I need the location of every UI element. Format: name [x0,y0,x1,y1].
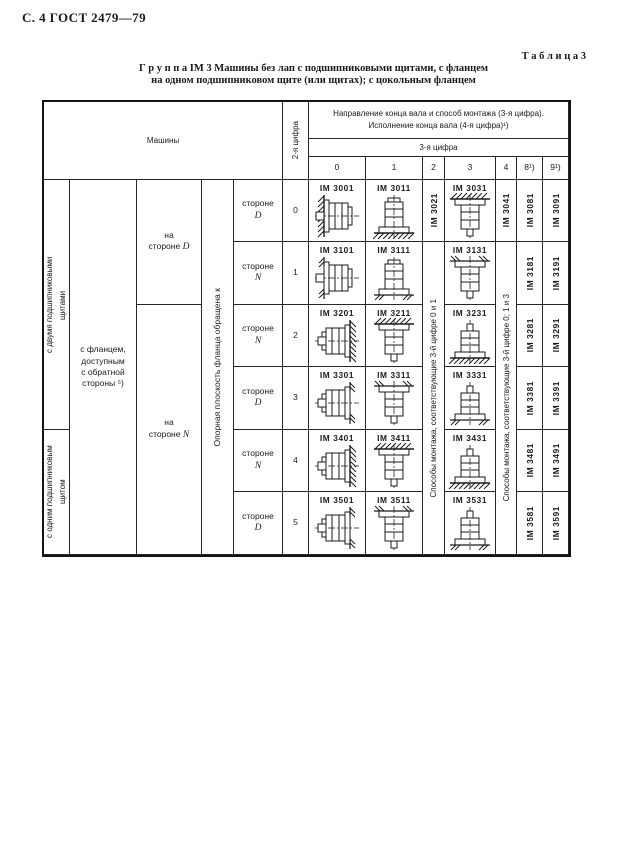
cell-second-digit-row1: 1 [283,242,309,305]
im-code-label: IM 3301 [320,370,354,380]
side-letter-n: N [183,430,189,440]
digit-col-header-9: 9¹) [543,157,569,180]
flange-note-line4: стороны ⁵) [80,378,126,389]
cell-machine-im-3101: IM 3101 [309,242,366,305]
side-letter: N [242,460,274,473]
cell-im-code-vertical-im-3041: IM 3041 [496,180,517,242]
cell-machine-im-3001: IM 3001 [309,180,366,242]
im-code-label: IM 3231 [453,308,487,318]
flange-note-cell: с фланцем, доступным с обратной стороны … [70,180,137,555]
side-letter: N [242,335,274,348]
cell-machine-im-3431: IM 3431 [445,430,496,492]
machine-mount-drawing [371,318,417,364]
support-plane-cell: Опорная плоскость фланца обращена к [202,180,234,555]
one-bearing-shield-cell: с одним подшипниковым щитом [44,430,70,555]
machine-mount-drawing [314,380,360,426]
im-code-label: IM 3211 [377,308,411,318]
cell-im-code-vertical-im-3091: IM 3091 [543,180,569,242]
digit-col-header-8: 8¹) [517,157,543,180]
im-code-label: IM 3481 [525,443,535,477]
machine-mount-drawing [314,318,360,364]
im-code-label: IM 3491 [551,443,561,477]
cell-im-code-vertical-im-3391: IM 3391 [543,367,569,430]
side-letter: N [242,272,274,285]
im-code-label: IM 3591 [551,506,561,540]
cell-im-code-vertical-im-3191: IM 3191 [543,242,569,305]
page-header: С. 4 ГОСТ 2479—79 [22,10,146,26]
digit-col-header-4: 4 [496,157,517,180]
im-code-label: IM 3041 [501,193,511,227]
cell-machine-im-3011: IM 3011 [366,180,423,242]
im-code-label: IM 3021 [429,193,439,227]
im-code-label: IM 3081 [525,193,535,227]
machine-mount-drawing [371,443,417,489]
table-title-line1: Г р у п п а IM 3 Машины без лап с подшип… [0,63,627,75]
machine-mount-drawing [314,255,360,301]
cell-machine-im-3211: IM 3211 [366,305,423,367]
im-code-label: IM 3401 [320,433,354,443]
cell-im-code-vertical-im-3281: IM 3281 [517,305,543,367]
machine-mount-drawing [447,505,493,551]
cell-machine-im-3031: IM 3031 [445,180,496,242]
gost-document-page: С. 4 ГОСТ 2479—79 Т а б л и ц а 3 Г р у … [0,0,627,846]
machine-mount-drawing [314,443,360,489]
cell-im-code-vertical-im-3381: IM 3381 [517,367,543,430]
machine-mount-drawing [371,193,417,239]
im-code-label: IM 3581 [525,506,535,540]
cell-machine-im-3401: IM 3401 [309,430,366,492]
im-code-label: IM 3311 [377,370,411,380]
cell-im-code-vertical-im-3081: IM 3081 [517,180,543,242]
second-digit-header-cell: 2-я цифра [283,102,309,180]
machine-mount-drawing [447,380,493,426]
im-code-label: IM 3501 [320,495,354,505]
cell-machine-im-3111: IM 3111 [366,242,423,305]
cell-machine-im-3231: IM 3231 [445,305,496,367]
machine-mount-drawing [314,193,360,239]
cell-machine-im-3501: IM 3501 [309,492,366,555]
mounting-note-col2-cell: Способы монтажа, соответствующие 3-й циф… [423,242,445,555]
flange-note-line2: доступным [80,356,126,367]
cell-facing-side-row2: сторонеN [234,305,283,367]
cell-machine-im-3511: IM 3511 [366,492,423,555]
im-code-label: IM 3431 [453,433,487,443]
side-letter: D [242,522,274,535]
on-side-prefix-n: на [149,417,189,428]
im-code-label: IM 3181 [525,256,535,290]
cell-second-digit-row3: 3 [283,367,309,430]
im-code-label: IM 3201 [320,308,354,318]
cell-im-code-vertical-im-3291: IM 3291 [543,305,569,367]
cell-im-code-vertical-im-3481: IM 3481 [517,430,543,492]
digit-col-header-1: 1 [366,157,423,180]
im-code-label: IM 3011 [377,183,411,193]
machine-mount-drawing [371,505,417,551]
mounting-note-col4-cell: Способы монтажа, соответствующие 3-й циф… [496,242,517,555]
im-code-label: IM 3511 [377,495,411,505]
cell-machine-im-3411: IM 3411 [366,430,423,492]
cell-facing-side-row0: сторонеD [234,180,283,242]
im-code-label: IM 3111 [377,245,410,255]
im-code-label: IM 3101 [320,245,354,255]
flange-note-line1: с фланцем, [80,344,126,355]
cell-second-digit-row2: 2 [283,305,309,367]
flange-on-side-d-cell: на стороне D [137,180,202,305]
im-code-label: IM 3001 [320,183,354,193]
direction-header-line2: Исполнение конца вала (4-я цифра)¹) [369,120,509,132]
third-digit-header-cell: 3-я цифра [309,139,569,157]
cell-machine-im-3311: IM 3311 [366,367,423,430]
machines-header-cell: Машины [44,102,283,180]
two-bearing-shields-label: с двумя подшипниковыми щитами [44,249,69,361]
cell-facing-side-row1: сторонеN [234,242,283,305]
table-title-line2: на одном подшипниковом щите (или щитах);… [0,75,627,87]
flange-note-line3: с обратной [80,367,126,378]
cell-machine-im-3201: IM 3201 [309,305,366,367]
im-code-label: IM 3191 [551,256,561,290]
cell-second-digit-row5: 5 [283,492,309,555]
one-bearing-shield-label: с одним подшипниковым щитом [44,440,69,544]
digit-col-header-3: 3 [445,157,496,180]
mounting-note-col4-label: Способы монтажа, соответствующие 3-й циф… [502,294,511,501]
third-digit-header-label: 3-я цифра [419,142,457,154]
cell-second-digit-row4: 4 [283,430,309,492]
cell-im-code-vertical-im-3581: IM 3581 [517,492,543,555]
im-code-label: IM 3091 [551,193,561,227]
flange-on-side-n-cell: на стороне N [137,305,202,555]
im-code-label: IM 3131 [453,245,487,255]
cell-im-code-vertical-im-3491: IM 3491 [543,430,569,492]
im3-mounting-table: Машины 2-я цифра Направление конца вала … [42,100,571,557]
cell-im-code-vertical-im-3021: IM 3021 [423,180,445,242]
digit-col-header-2: 2 [423,157,445,180]
support-plane-label: Опорная плоскость фланца обращена к [212,288,223,447]
im-code-label: IM 3031 [453,183,487,193]
on-side-prefix: на [149,230,190,241]
machine-mount-drawing [371,380,417,426]
cell-machine-im-3301: IM 3301 [309,367,366,430]
im-code-label: IM 3281 [525,318,535,352]
machine-mount-drawing [447,255,493,301]
cell-im-code-vertical-im-3591: IM 3591 [543,492,569,555]
im-code-label: IM 3291 [551,318,561,352]
machine-mount-drawing [314,505,360,551]
two-bearing-shields-cell: с двумя подшипниковыми щитами [44,180,70,430]
im-code-label: IM 3381 [525,381,535,415]
machine-mount-drawing [447,193,493,239]
machine-mount-drawing [371,255,417,301]
im-code-label: IM 3411 [377,433,411,443]
cell-im-code-vertical-im-3181: IM 3181 [517,242,543,305]
cell-facing-side-row4: сторонеN [234,430,283,492]
side-letter-d: D [183,242,190,252]
cell-second-digit-row0: 0 [283,180,309,242]
machine-mount-drawing [447,443,493,489]
side-letter: D [242,210,274,223]
cell-facing-side-row3: сторонеD [234,367,283,430]
direction-header-cell: Направление конца вала и способ монтажа … [309,102,569,139]
cell-machine-im-3131: IM 3131 [445,242,496,305]
cell-facing-side-row5: сторонеD [234,492,283,555]
second-digit-header-label: 2-я цифра [290,121,302,159]
im-code-label: IM 3391 [551,381,561,415]
machines-header-label: Машины [147,135,179,147]
im-code-label: IM 3531 [453,495,487,505]
cell-machine-im-3531: IM 3531 [445,492,496,555]
direction-header-line1: Направление конца вала и способ монтажа … [333,108,544,120]
side-letter: D [242,397,274,410]
table-number-label: Т а б л и ц а 3 [522,51,586,62]
cell-machine-im-3331: IM 3331 [445,367,496,430]
table-title: Г р у п п а IM 3 Машины без лап с подшип… [0,63,627,87]
machine-mount-drawing [447,318,493,364]
im-code-label: IM 3331 [453,370,487,380]
mounting-note-col2-label: Способы монтажа, соответствующие 3-й циф… [429,299,438,498]
digit-col-header-0: 0 [309,157,366,180]
